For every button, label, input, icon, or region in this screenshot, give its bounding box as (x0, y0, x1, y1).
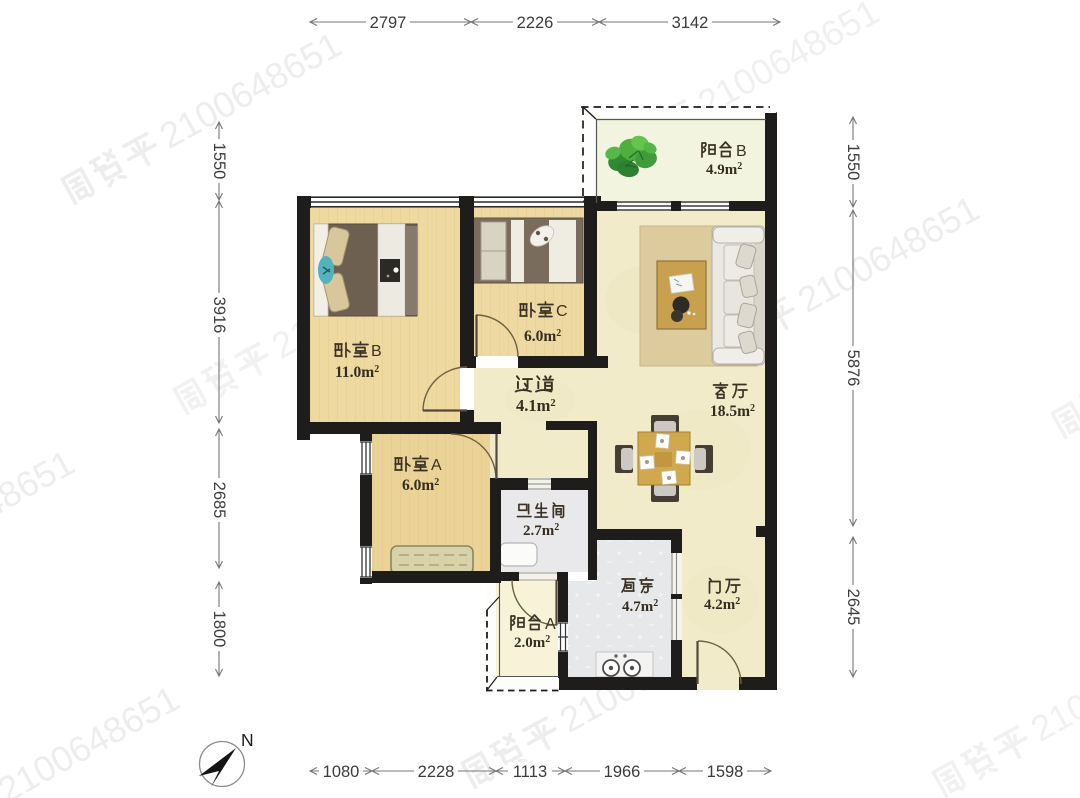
svg-text:B: B (371, 343, 382, 360)
svg-text:A: A (545, 616, 556, 633)
svg-text:1966: 1966 (604, 763, 641, 781)
svg-text:1113: 1113 (513, 763, 547, 781)
svg-text:2797: 2797 (370, 14, 407, 32)
svg-text:6.0m2: 6.0m2 (524, 328, 561, 345)
svg-text:A: A (431, 457, 442, 474)
svg-text:4.7m2: 4.7m2 (622, 598, 658, 615)
svg-text:11.0m2: 11.0m2 (335, 364, 379, 381)
svg-text:2645: 2645 (844, 589, 862, 626)
svg-text:3916: 3916 (210, 297, 228, 334)
svg-text:1550: 1550 (844, 144, 862, 181)
svg-text:B: B (736, 143, 747, 160)
svg-text:C: C (556, 303, 568, 320)
svg-text:4.2m2: 4.2m2 (704, 596, 740, 613)
svg-text:2228: 2228 (418, 763, 455, 781)
svg-text:2.0m2: 2.0m2 (514, 634, 550, 651)
svg-text:2685: 2685 (210, 482, 228, 519)
svg-text:5876: 5876 (844, 350, 862, 387)
svg-text:1598: 1598 (707, 763, 744, 781)
svg-text:18.5m2: 18.5m2 (710, 403, 755, 420)
svg-text:1080: 1080 (323, 763, 360, 781)
svg-text:1800: 1800 (210, 611, 228, 648)
svg-text:4.1m2: 4.1m2 (516, 396, 556, 415)
svg-text:N: N (241, 730, 254, 750)
svg-text:4.9m2: 4.9m2 (706, 161, 742, 178)
svg-text:3142: 3142 (672, 14, 709, 32)
svg-text:2.7m2: 2.7m2 (523, 522, 559, 539)
svg-text:6.0m2: 6.0m2 (402, 477, 439, 494)
svg-text:2226: 2226 (517, 14, 554, 32)
svg-text:1550: 1550 (210, 143, 228, 180)
